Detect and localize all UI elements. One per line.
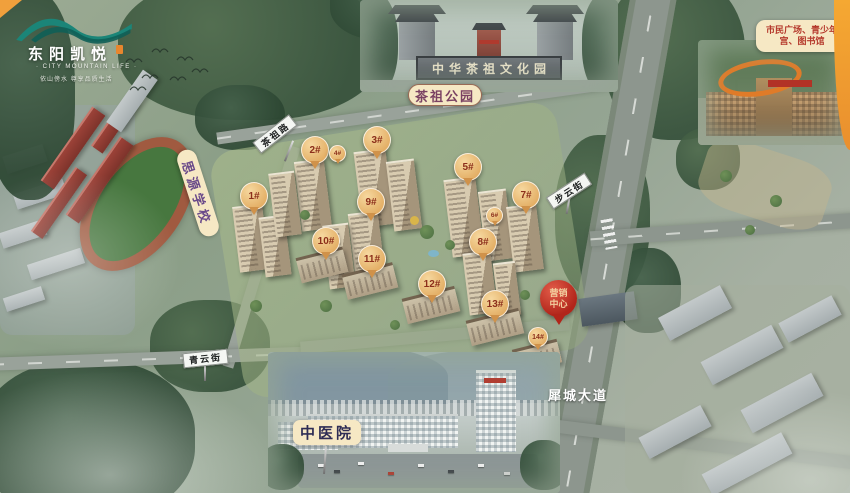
hospital-label-text: 中医院	[300, 422, 354, 443]
gate-tower-roof	[395, 14, 439, 22]
gate-tower-roof	[526, 5, 584, 14]
gate-plaque-text: 中华茶祖文化园	[432, 60, 551, 77]
building-marker-8[interactable]: 8#	[469, 228, 497, 256]
park-label: 茶祖公园	[408, 84, 482, 106]
sales-center-pin[interactable]: 营销中心	[540, 280, 577, 317]
gate-tower-body	[399, 22, 435, 60]
brand-subtitle: · CITY MOUNTAIN LIFE ·	[36, 64, 137, 70]
gate-center-accent	[479, 40, 499, 44]
car	[448, 470, 454, 473]
gate-center-roof	[472, 23, 506, 30]
park-gate-inset: 中华茶祖文化园	[360, 0, 618, 92]
site-plan-map: 中华茶祖文化园	[0, 0, 850, 493]
building-marker-11[interactable]: 11#	[358, 245, 386, 273]
marker-label: 9#	[365, 197, 376, 208]
landscape-tree	[420, 225, 434, 239]
marker-label: 8#	[477, 237, 488, 248]
road-label-xicheng: 犀城大道	[548, 385, 608, 404]
landscape-tree	[300, 210, 310, 220]
marker-label: 5#	[462, 162, 473, 173]
civic-roof-sign	[768, 80, 812, 87]
logo-seal-icon	[116, 45, 123, 54]
car	[418, 464, 424, 467]
gate-tower-roof	[533, 14, 577, 22]
inset-trees	[520, 440, 560, 490]
plaza-tree	[770, 195, 782, 207]
building-marker-4[interactable]: 4#	[329, 145, 346, 162]
brand-name: 东阳凯悦	[28, 43, 112, 64]
marker-label: 2#	[309, 145, 320, 156]
building-marker-6[interactable]: 6#	[486, 207, 503, 224]
building-marker-9[interactable]: 9#	[357, 188, 385, 216]
gate-center-body	[477, 30, 501, 58]
landscape-tree	[390, 320, 400, 330]
inset-trees	[582, 0, 618, 92]
building-marker-2[interactable]: 2#	[301, 136, 329, 164]
car	[504, 472, 510, 475]
landscape-tree	[520, 290, 530, 300]
building-marker-1[interactable]: 1#	[240, 182, 268, 210]
civic-label-text: 市民广场、青少年宫、图书馆	[758, 25, 846, 48]
car	[388, 472, 394, 475]
marker-label: 7#	[520, 190, 531, 201]
inset-trees	[268, 444, 304, 490]
car	[334, 470, 340, 473]
logo-wave-icon	[15, 10, 133, 44]
civic-inset	[698, 40, 850, 145]
landscape-tree	[320, 300, 332, 312]
hospital-canopy	[388, 444, 428, 452]
marker-label: 11#	[364, 254, 380, 265]
building-marker-3[interactable]: 3#	[363, 126, 391, 154]
building-marker-5[interactable]: 5#	[454, 153, 482, 181]
marker-label: 1#	[248, 191, 259, 202]
building-marker-7[interactable]: 7#	[512, 181, 540, 209]
building-marker-12[interactable]: 12#	[418, 270, 446, 298]
building-marker-14[interactable]: 14#	[528, 327, 548, 347]
hospital-label: 中医院	[293, 420, 361, 445]
car	[358, 462, 364, 465]
road-sign-pole	[204, 365, 206, 381]
road-sign-text: 青云街	[188, 350, 222, 366]
plaza-tree	[745, 225, 755, 235]
brand-tagline: 依山傍水 尊享品质生活	[40, 74, 113, 83]
marker-label: 14#	[532, 334, 544, 341]
car	[478, 464, 484, 467]
building-marker-13[interactable]: 13#	[481, 290, 509, 318]
marker-label: 3#	[371, 135, 382, 146]
gate-plaque: 中华茶祖文化园	[416, 56, 562, 80]
building-marker-10[interactable]: 10#	[312, 227, 340, 255]
marker-label: 10#	[318, 236, 335, 247]
pool-spot	[428, 250, 439, 257]
hospital-sign	[484, 378, 506, 383]
marker-label: 12#	[424, 279, 441, 290]
park-label-text: 茶祖公园	[415, 86, 475, 105]
landscape-tree	[445, 240, 455, 250]
birds-icon	[122, 44, 222, 99]
gate-ground	[360, 80, 618, 92]
mountain	[388, 352, 560, 403]
playground-spot	[410, 216, 419, 225]
marker-label: 4#	[334, 150, 341, 157]
gate-tower-roof	[388, 5, 446, 14]
marker-label: 6#	[491, 212, 498, 219]
gate-tower-body	[537, 22, 573, 60]
sales-center-label: 营销中心	[548, 288, 570, 309]
marker-label: 13#	[487, 299, 504, 310]
landscape-tree	[250, 300, 262, 312]
plaza-tree	[720, 170, 732, 182]
